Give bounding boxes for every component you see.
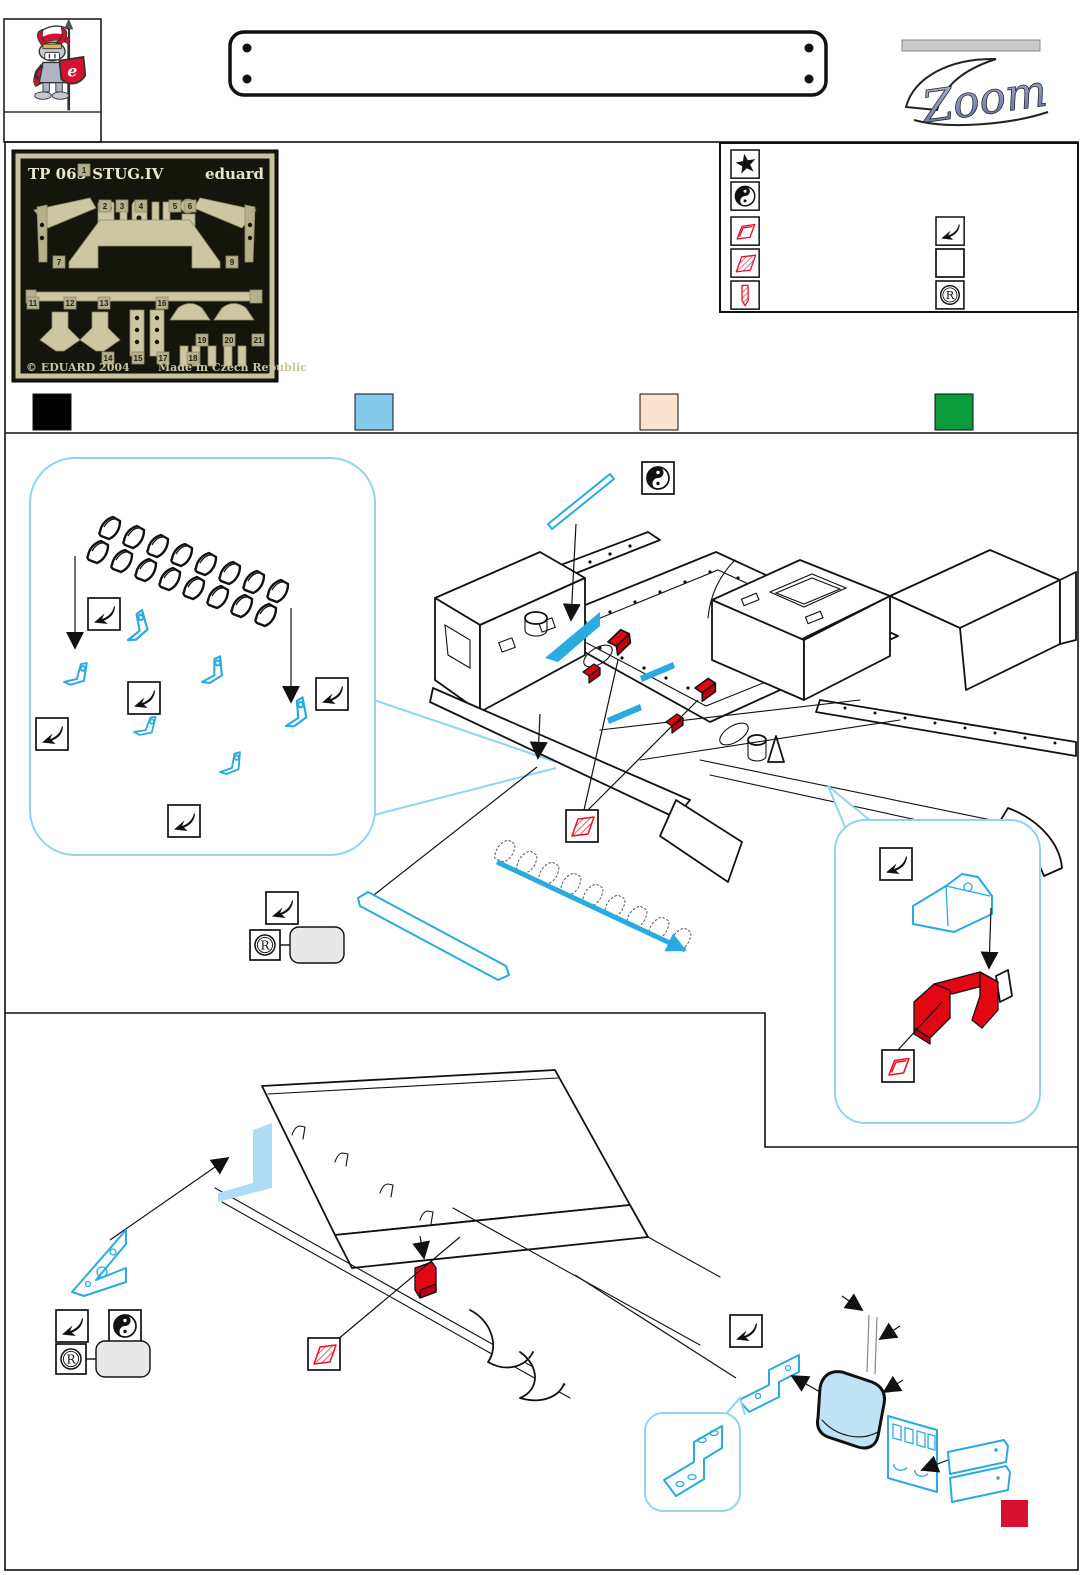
hatched-parallelogram-icon — [731, 249, 759, 277]
part-number: 12 — [66, 299, 75, 308]
color-swatch-green — [935, 394, 973, 430]
bend-symbol — [266, 892, 298, 924]
pe-double-plate-part — [948, 1440, 1010, 1502]
header: e Zoom — [4, 18, 1050, 142]
pe-dash-marker — [607, 704, 642, 724]
red-clamp-part — [583, 664, 600, 683]
part-number: 11 — [29, 299, 38, 308]
zoom-logo-bar — [902, 40, 1040, 51]
fret-photo: TP 065 STUG.IV eduard — [12, 150, 307, 382]
registered-icon — [936, 281, 964, 309]
bend-arrow-icon — [936, 217, 964, 245]
bend-symbol — [316, 678, 348, 710]
lower-assembly-diagram — [56, 1070, 1028, 1527]
bend-symbol — [880, 848, 912, 880]
bend-symbol — [56, 1310, 88, 1342]
pe-area-highlight — [218, 1123, 272, 1202]
part-number: 5 — [173, 202, 178, 211]
banner-screw-dot — [243, 44, 252, 53]
remove-part-symbol — [882, 1050, 914, 1082]
pe-strip-part — [548, 474, 614, 529]
registered-label — [250, 927, 344, 963]
part-number: 7 — [57, 258, 62, 267]
part-number: 6 — [188, 202, 193, 211]
yin-yang-icon — [731, 182, 759, 210]
color-swatch-blue — [355, 394, 393, 430]
drill-icon — [731, 281, 759, 309]
part-number: 1 — [82, 166, 87, 175]
upper-assembly-diagram — [30, 458, 1076, 1123]
color-swatch-peach — [640, 394, 678, 430]
yin-yang-symbol — [642, 462, 674, 494]
glue-surface-symbol — [308, 1338, 340, 1370]
title-banner — [230, 32, 826, 95]
bend-symbol — [88, 598, 120, 630]
banner-screw-dot — [243, 75, 252, 84]
tow-bracket-callout — [828, 786, 1040, 1123]
yin-yang-symbol — [109, 1310, 141, 1342]
pe-gusset-part — [72, 1230, 126, 1296]
red-color-marker — [1001, 1500, 1028, 1527]
part-number: 16 — [158, 299, 167, 308]
glue-surface-symbol — [566, 810, 598, 842]
part-number: 4 — [139, 202, 144, 211]
red-block-part — [415, 1262, 436, 1298]
zoom-series-logo: Zoom — [902, 40, 1050, 134]
part-number: 20 — [225, 336, 234, 345]
part-number: 9 — [230, 258, 235, 267]
part-number: 19 — [198, 336, 207, 345]
bend-symbol — [730, 1315, 762, 1347]
bracket-detail-callout — [645, 1398, 745, 1511]
color-swatch-black — [33, 394, 71, 430]
part-number: 21 — [254, 336, 263, 345]
fret-copyright: © EDUARD 2004 — [26, 361, 130, 374]
part-number: 13 — [100, 299, 109, 308]
symbol-legend — [720, 143, 1078, 312]
banner-screw-dot — [805, 44, 814, 53]
shield-letter: e — [67, 61, 77, 80]
part-number: 3 — [120, 202, 125, 211]
part-number: 15 — [134, 354, 143, 363]
registered-label — [56, 1341, 150, 1377]
fret-brand: eduard — [205, 165, 265, 183]
bend-symbol — [128, 682, 160, 714]
bin-lid-part — [817, 1372, 884, 1448]
fret-made-in: Made in Czech Republic — [158, 361, 307, 374]
part-number: 2 — [103, 202, 108, 211]
open-parallelogram-icon — [731, 217, 759, 245]
fret-title: TP 065 STUG.IV — [28, 165, 164, 183]
pe-slotted-plate-part — [888, 1416, 937, 1492]
track-run-drawing — [494, 840, 691, 950]
bend-symbol — [36, 718, 68, 750]
banner-screw-dot — [805, 75, 814, 84]
pe-z-bracket-part — [739, 1355, 799, 1412]
empty-box-icon — [936, 249, 964, 277]
instruction-sheet: R e — [0, 0, 1083, 1575]
color-key — [5, 394, 1078, 433]
bend-symbol — [168, 805, 200, 837]
star-icon — [731, 150, 759, 178]
side-skirt-drawing — [56, 1070, 720, 1400]
